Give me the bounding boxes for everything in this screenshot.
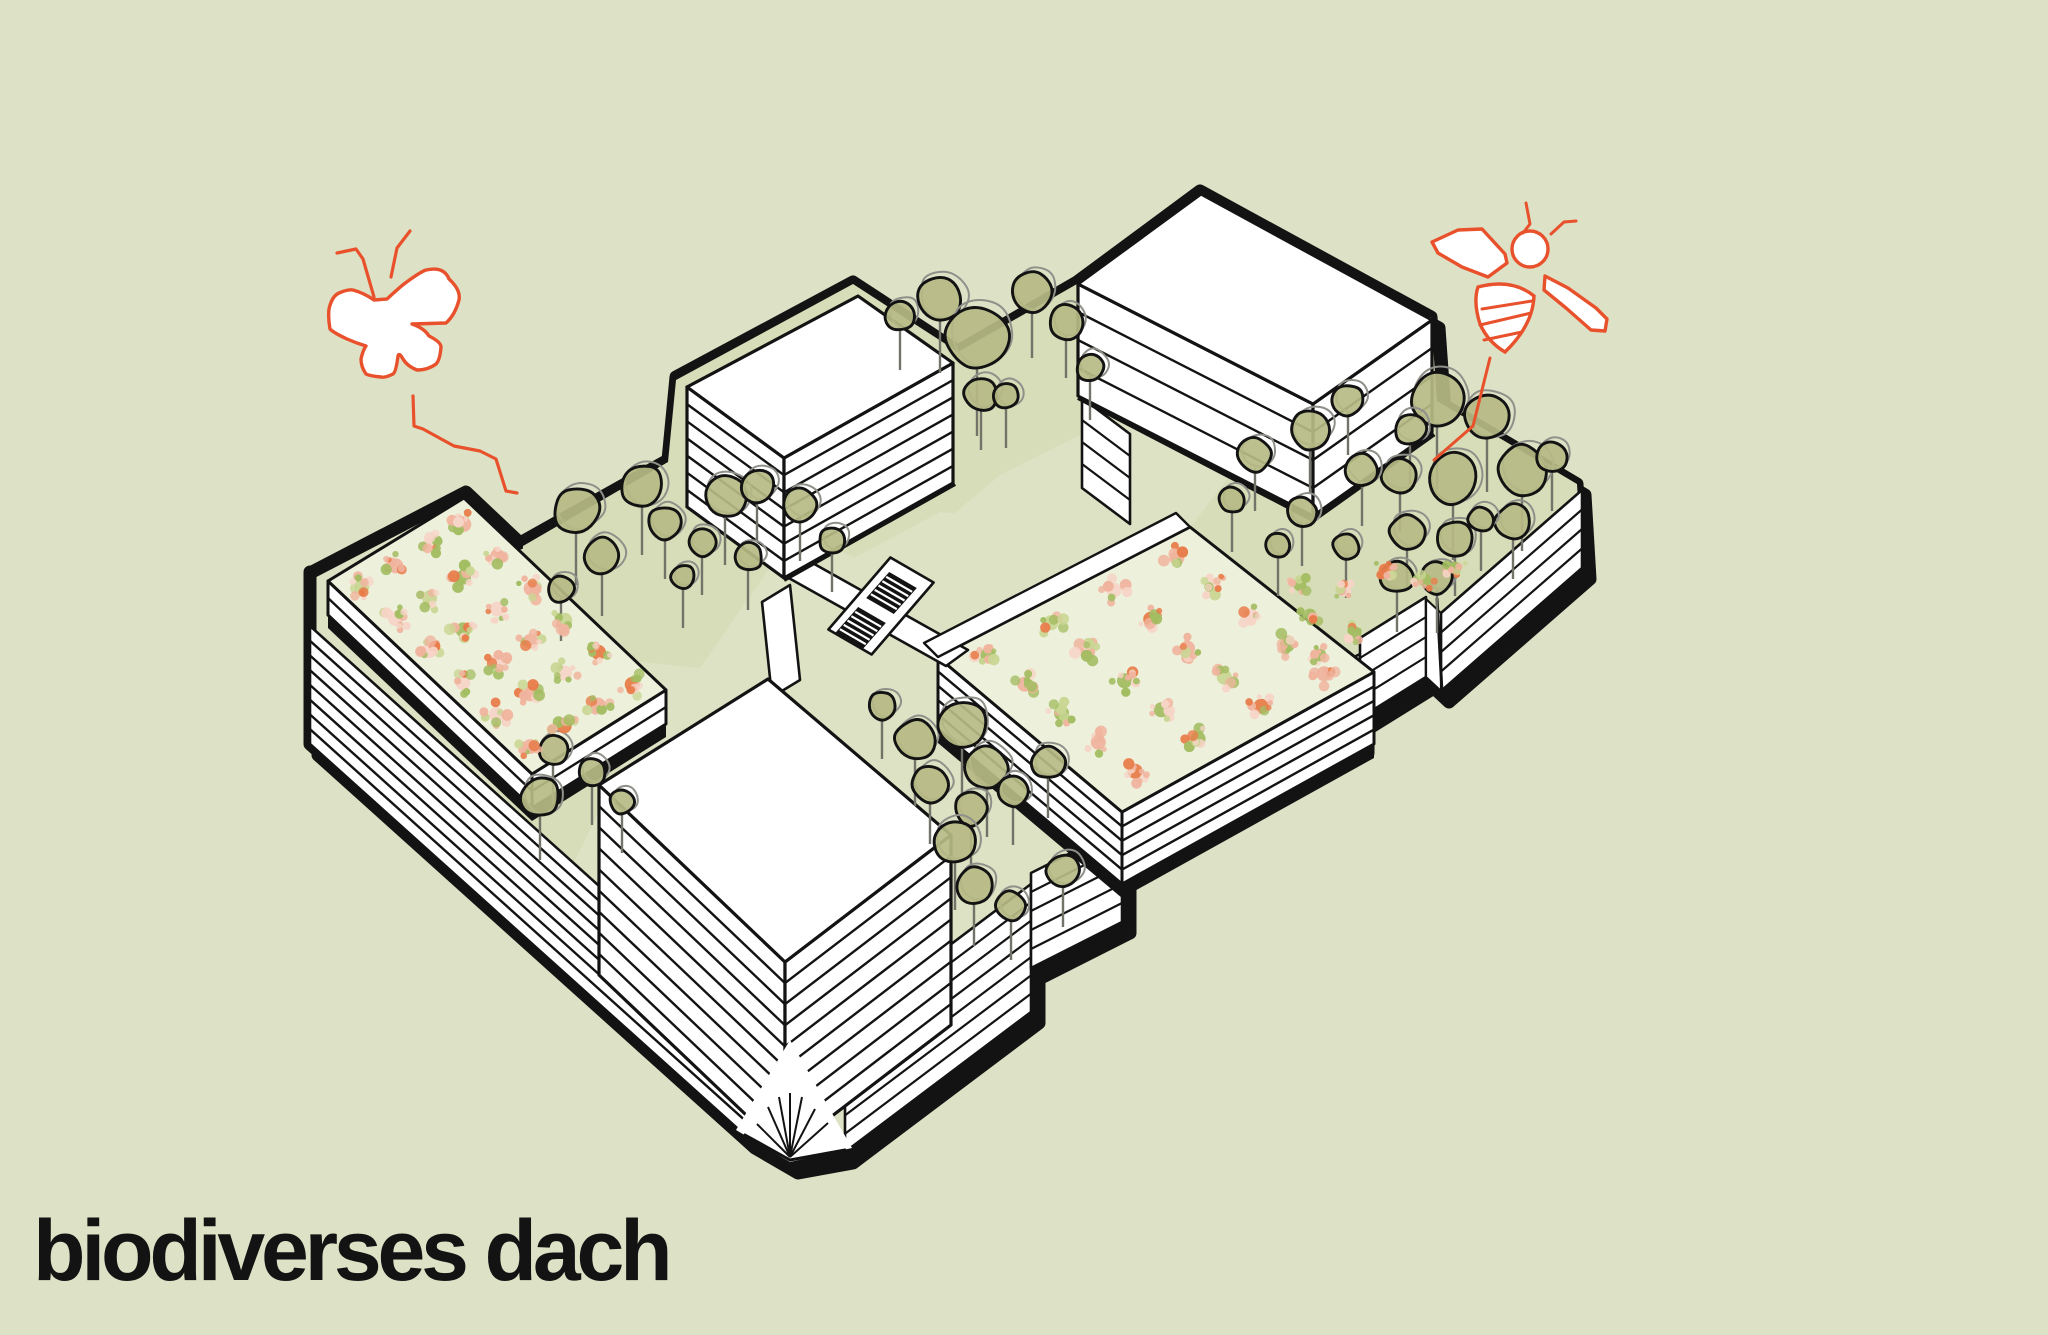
svg-text:biodiverses dach: biodiverses dach: [33, 1203, 668, 1299]
